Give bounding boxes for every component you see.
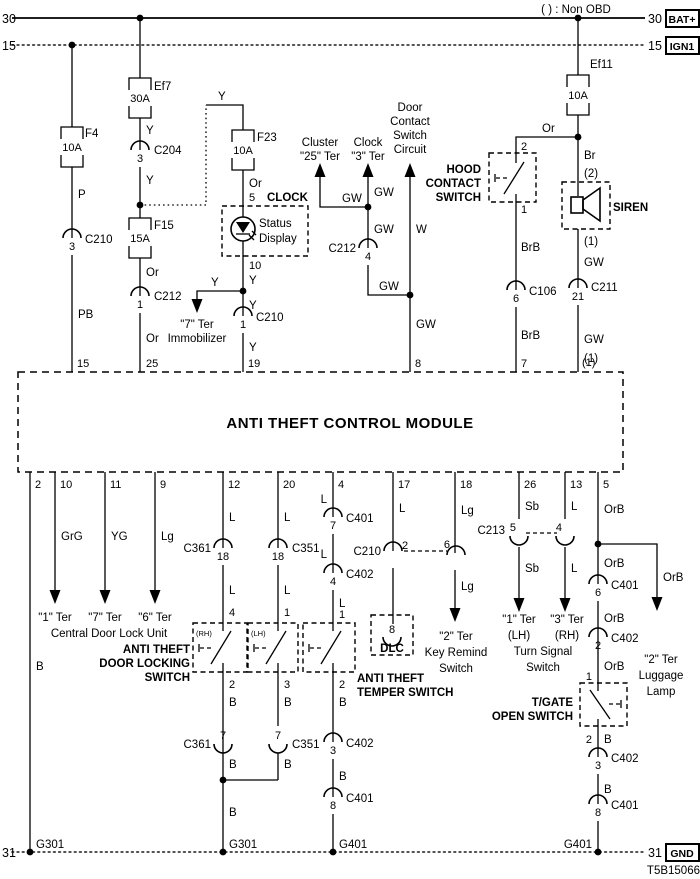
clock-ref-2: "3" Ter [351, 151, 385, 163]
terminal-number: 18 [460, 479, 472, 491]
wire-label: L [321, 549, 328, 561]
wire-label: Y [218, 91, 226, 103]
door-ref-3: Switch [393, 130, 427, 142]
wire-label: L [321, 494, 328, 506]
terminal-number: 5 [603, 479, 609, 491]
connector-pin: 8 [330, 800, 336, 812]
arrow-down-icon [652, 597, 663, 611]
connector-name: C212 [329, 243, 357, 255]
connector-name: C401 [346, 513, 374, 525]
terminal-number: 19 [248, 358, 260, 370]
temper-label-1: ANTI THEFT [357, 673, 424, 685]
junction-dot [407, 292, 414, 299]
wire-label: (1) [584, 236, 598, 248]
arrow-up-icon [315, 163, 326, 177]
switch-pin: 2 [586, 734, 592, 746]
door-ref-2: Contact [390, 116, 430, 128]
connector-name: C351 [292, 543, 320, 555]
tgate-label-1: T/GATE [532, 697, 574, 709]
wire-label: Y [146, 125, 154, 137]
wire-label: BrB [521, 242, 541, 254]
wire-label: GW [584, 334, 604, 346]
wire-label: Sb [525, 563, 539, 575]
door-lock-rh-switch-box: (RH) [193, 623, 247, 672]
cdlu-terminal-7: "7" Ter [88, 612, 122, 624]
connector-name: C210 [85, 234, 113, 246]
wire-label: OrB [663, 572, 684, 584]
connector-name: C361 [184, 739, 212, 751]
arrow-down-icon [450, 608, 461, 622]
ground-dot [595, 849, 602, 856]
clock-pin-top: 5 [249, 192, 255, 204]
wire-label: B [339, 697, 347, 709]
connector-pin: 18 [217, 551, 229, 563]
ground-name-g301: G301 [36, 839, 64, 851]
terminal-number: 2 [35, 479, 41, 491]
connector-name: C401 [346, 793, 374, 805]
connector-name: C402 [611, 633, 639, 645]
fuse-ef7-name: Ef7 [154, 81, 171, 93]
wire-label: Y [146, 175, 154, 187]
fuse-f23-rating: 10A [233, 145, 253, 157]
switch-pin: 2 [339, 679, 345, 691]
wire-label: B [229, 697, 237, 709]
connector-name: C211 [591, 282, 618, 294]
wire-label: B [284, 759, 292, 771]
wire-label: Lg [461, 505, 474, 517]
connector-name: C204 [154, 145, 182, 157]
drawing-number: T5B15066 [647, 865, 700, 877]
luggage-terminal: "2" Ter [644, 654, 678, 666]
connector-pin: 4 [365, 251, 371, 263]
immobilizer-label: Immobilizer [168, 333, 227, 345]
status-led-icon [231, 217, 256, 241]
terminal-number: 26 [524, 479, 536, 491]
connector-pin: 6 [595, 587, 601, 599]
fuse-f23-name: F23 [257, 132, 277, 144]
module-title: ANTI THEFT CONTROL MODULE [226, 415, 473, 432]
ground-name-g401: G401 [564, 839, 592, 851]
wire-label: L [284, 585, 291, 597]
speaker-icon [571, 188, 600, 221]
wire-label: L [571, 501, 578, 513]
bus-31-label-right: 31 [648, 846, 662, 860]
turn-signal-label-2: Switch [526, 662, 560, 674]
status-display-label-1: Status [259, 218, 292, 230]
bus-30-label-right: 30 [648, 12, 662, 26]
connector-pin: 4 [330, 576, 336, 588]
tgate-label-2: OPEN SWITCH [492, 711, 573, 723]
connector-arc-icon [556, 536, 574, 545]
wire-label: BrB [521, 330, 541, 342]
connector-name: C106 [529, 286, 557, 298]
connector-pin: 1 [137, 299, 143, 311]
wire-label: Or [146, 333, 159, 345]
turn-lh-terminal: "1" Ter [502, 614, 536, 626]
immobilizer-terminal: "7" Ter [180, 319, 214, 331]
turn-rh-terminal: "3" Ter [550, 614, 584, 626]
terminal-number: 10 [60, 479, 72, 491]
connector-name: C402 [346, 738, 374, 750]
arrow-down-icon [50, 590, 61, 604]
arrow-down-icon [100, 590, 111, 604]
dlc-box: 8 DLC [371, 615, 413, 655]
fuse-f15-name: F15 [154, 220, 174, 232]
wire-label: GrG [61, 531, 83, 543]
bus-15: 15 15 IGN1 [2, 37, 699, 54]
wire-label: GW [416, 319, 436, 331]
wire-label: Lg [461, 581, 474, 593]
connector-name: C212 [154, 291, 182, 303]
terminal-number: 11 [110, 479, 121, 491]
hood-label-1: HOOD [447, 164, 482, 176]
status-display-label-2: Display [259, 233, 297, 245]
fuse-ef11-name: Ef11 [590, 59, 613, 71]
wire-label: L [399, 503, 406, 515]
connector-arc-icon [510, 536, 528, 545]
wire-label: OrB [604, 558, 625, 570]
luggage-label-2: Lamp [647, 686, 676, 698]
luggage-label-1: Luggage [639, 670, 684, 682]
module-top-terminals: 15 25 19 8 7 (1) [77, 357, 595, 370]
wire-label: Or [542, 123, 555, 135]
connector-name: C351 [292, 739, 320, 751]
switch-pin: 3 [284, 679, 290, 691]
bat-label: BAT+ [669, 14, 696, 26]
connector-pin: 3 [69, 241, 75, 253]
gnd-label: GND [670, 848, 694, 860]
hood-switch-pin-top: 2 [521, 141, 527, 153]
arrow-down-icon [514, 598, 525, 612]
hood-label-2: CONTACT [426, 178, 481, 190]
siren-label: SIREN [613, 202, 648, 214]
door-lock-lh-switch-box: (LH) [248, 623, 298, 672]
junction-dot [575, 134, 582, 141]
siren-box [562, 182, 610, 229]
connector-pin: 7 [275, 730, 281, 742]
siren-branch-wires [575, 15, 582, 372]
hood-contact-switch-box [489, 153, 536, 202]
terminal-number: 20 [283, 479, 295, 491]
terminal-number: 8 [415, 358, 421, 370]
connector-name: C401 [611, 580, 639, 592]
wire-label: YG [111, 531, 128, 543]
switch-pin: 2 [229, 679, 235, 691]
connector-pin: 2 [402, 540, 408, 552]
wire-label: Y [249, 275, 257, 287]
rh-label: (RH) [196, 629, 212, 638]
module-bottom-terminals: 2 10 11 9 12 20 4 17 18 26 13 5 [35, 479, 609, 491]
connector-pin: 21 [572, 291, 584, 303]
key-remind-label-1: Key Remind [425, 647, 488, 659]
junction-dot [137, 15, 144, 22]
wire-label: W [416, 224, 427, 236]
connector-pin: 3 [137, 153, 143, 165]
temper-switch-box [303, 623, 355, 672]
terminal-number: 9 [160, 479, 166, 491]
junction-dot [69, 42, 76, 49]
cdlu-terminal-6: "6" Ter [138, 612, 172, 624]
terminal-number: 4 [338, 479, 344, 491]
clock-pin-bottom: 10 [249, 260, 261, 272]
fuse-ef7-rating: 30A [130, 93, 150, 105]
connector-name: C210 [354, 546, 382, 558]
arrow-down-icon [192, 299, 203, 313]
wire-label: Y [249, 342, 257, 354]
switch-pin: 1 [339, 609, 345, 621]
terminal-number: 13 [570, 479, 582, 491]
ground-name-g401: G401 [339, 839, 367, 851]
switch-pin: 4 [229, 607, 235, 619]
ground-dot [220, 849, 227, 856]
door-locking-label-2: DOOR LOCKING [99, 658, 190, 670]
turn-rh-label: (RH) [555, 630, 579, 642]
connector-pin: 6 [513, 293, 519, 305]
wire-label: B [36, 661, 44, 673]
turn-lh-label: (LH) [508, 630, 531, 642]
bus-15-label-left: 15 [2, 39, 16, 53]
wiring-diagram-page: 30 30 BAT+ 15 15 IGN1 ( ) : Non OBD 10A … [0, 0, 700, 879]
wire-label: Br [584, 150, 596, 162]
bus-31-label-left: 31 [2, 846, 16, 860]
switch-pin: 1 [284, 607, 290, 619]
door-ref-1: Door [398, 102, 423, 114]
junction-dot [365, 204, 372, 211]
fuse-f4-rating: 10A [62, 142, 82, 154]
wire-label: B [604, 734, 612, 746]
connector-pin: 7 [220, 730, 226, 742]
door-locking-label-3: SWITCH [145, 672, 190, 684]
wire-label: L [229, 512, 236, 524]
wire-label: L [229, 585, 236, 597]
ground-name-g301: G301 [229, 839, 257, 851]
clock-title: CLOCK [267, 192, 309, 204]
reference-arrows-wires [320, 177, 413, 372]
wire-label: Y [211, 277, 219, 289]
wire-label: OrB [604, 504, 625, 516]
arrow-down-icon [150, 590, 161, 604]
connector-arc-icon [269, 744, 287, 753]
lh-label: (LH) [251, 629, 266, 638]
door-ref-4: Circuit [394, 144, 427, 156]
clock-box: Status Display [222, 206, 308, 256]
non-obd-legend: ( ) : Non OBD [541, 4, 611, 16]
wire-label: GW [379, 281, 399, 293]
connector-pin: 5 [510, 522, 516, 534]
connector-pin: 4 [556, 522, 562, 534]
ground-dot [27, 849, 34, 856]
connector-pin: 1 [240, 319, 246, 331]
cluster-ref-2: "25" Ter [300, 151, 340, 163]
ign-label: IGN1 [670, 41, 695, 53]
wire-label: B [339, 771, 347, 783]
wire-label: Or [146, 267, 159, 279]
wire-label: B [229, 759, 237, 771]
wire-label: L [571, 563, 578, 575]
wire-label: Sb [525, 501, 539, 513]
wire-label: (2) [584, 168, 598, 180]
wire-label: GW [374, 187, 394, 199]
connector-name: C402 [611, 753, 639, 765]
arrow-up-icon [363, 163, 374, 177]
terminal-number: 25 [146, 358, 158, 370]
door-lock-rh-wires [220, 472, 278, 852]
connector-pin: 18 [272, 551, 284, 563]
clock-ref-1: Clock [354, 137, 383, 149]
hood-switch-pin-bottom: 1 [521, 204, 527, 216]
connector-pin: 7 [330, 520, 336, 532]
wire-label: B [229, 807, 237, 819]
cdlu-terminal-1: "1" Ter [38, 612, 72, 624]
switch-contact-icon [309, 631, 341, 664]
wire-label: GW [342, 193, 362, 205]
wire-label: OrB [604, 613, 625, 625]
connector-pin: 3 [595, 760, 601, 772]
tgate-switch-box [580, 683, 627, 726]
turn-signal-label-1: Turn Signal [514, 646, 572, 658]
wire-label: L [284, 512, 291, 524]
fuse-f4-name: F4 [85, 128, 99, 140]
key-remind-label-2: Switch [439, 663, 473, 675]
dlc-pin: 8 [389, 624, 395, 636]
connector-name: C361 [184, 543, 212, 555]
terminal-number: 7 [521, 358, 527, 370]
bus-15-label-right: 15 [648, 39, 662, 53]
connector-name: C210 [256, 312, 284, 324]
fuse-f15-rating: 15A [130, 233, 150, 245]
fuse-ef11-rating: 10A [568, 90, 588, 102]
key-remind-terminal: "2" Ter [439, 631, 473, 643]
connector-pin: 3 [330, 745, 336, 757]
wire-label: Lg [161, 531, 174, 543]
cdlu-name: Central Door Lock Unit [51, 628, 168, 640]
terminal-number: (1) [582, 357, 595, 369]
connector-name: C402 [346, 569, 374, 581]
connector-name: C401 [611, 800, 639, 812]
terminal-number: 12 [228, 479, 240, 491]
ground-dot [330, 849, 337, 856]
wire-label: B [604, 784, 612, 796]
terminal-number: 17 [398, 479, 410, 491]
wire-label: GW [374, 224, 394, 236]
anti-theft-wiring-diagram: 30 30 BAT+ 15 15 IGN1 ( ) : Non OBD 10A … [0, 0, 700, 879]
f4-branch-wires [69, 42, 76, 372]
wire-label: OrB [604, 661, 625, 673]
wire-label: PB [78, 309, 94, 321]
temper-label-2: TEMPER SWITCH [357, 687, 453, 699]
arrow-up-icon [405, 163, 416, 177]
arrow-down-icon [560, 598, 571, 612]
dlc-label: DLC [380, 643, 404, 655]
wire-label: P [78, 189, 86, 201]
wire-label: GW [584, 257, 604, 269]
connector-pin: 8 [595, 807, 601, 819]
wire-label: Or [249, 178, 262, 190]
cluster-ref-1: Cluster [302, 137, 339, 149]
switch-pin: 1 [586, 671, 592, 683]
connector-name: C213 [478, 525, 506, 537]
junction-dot [575, 15, 582, 22]
connector-pin: 2 [595, 640, 601, 652]
terminal-number: 15 [77, 358, 89, 370]
switch-contact-icon [590, 690, 621, 719]
hood-label-3: SWITCH [436, 192, 481, 204]
wire-label: B [284, 697, 292, 709]
door-locking-label-1: ANTI THEFT [123, 644, 190, 656]
switch-contact-icon [495, 162, 524, 194]
bus-30-label-left: 30 [2, 12, 16, 26]
